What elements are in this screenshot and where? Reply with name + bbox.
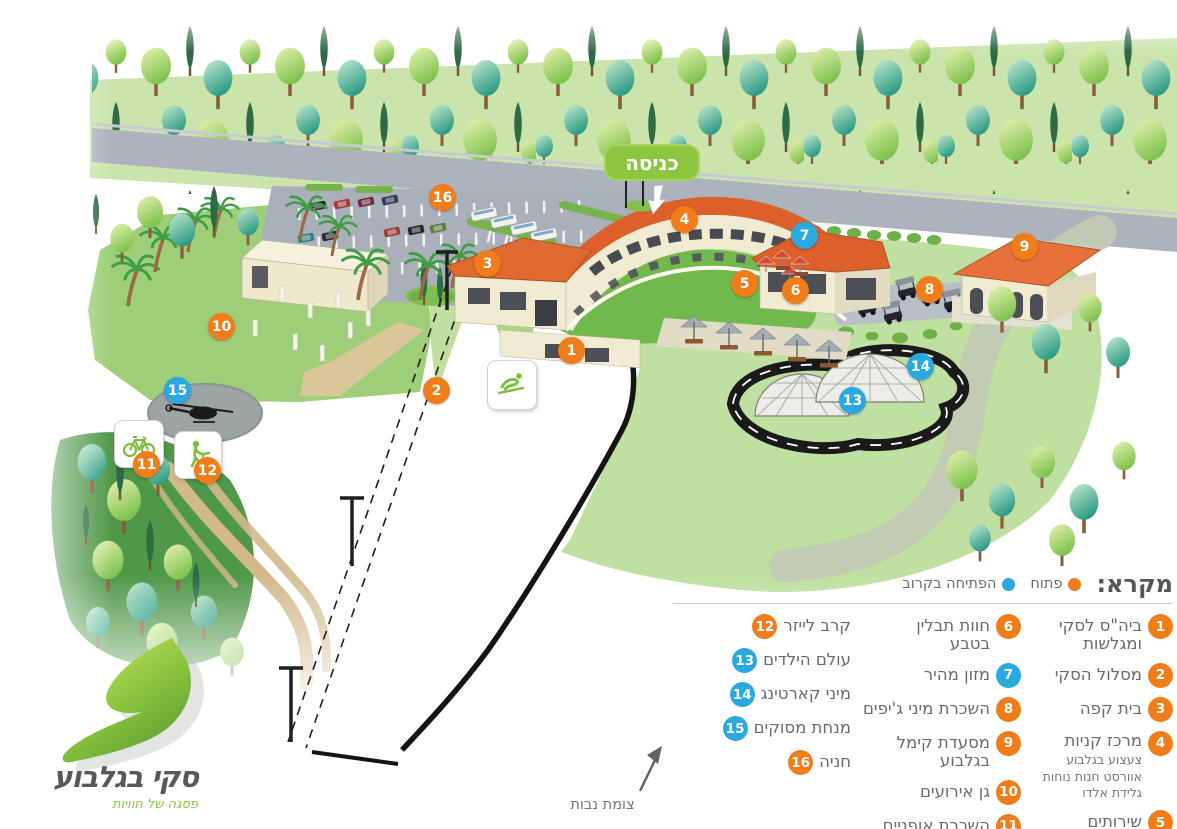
legend-badge-12: 12 (752, 614, 777, 639)
open-status-dot (1068, 578, 1081, 591)
legend-item-16: חניה 16 (673, 750, 851, 775)
legend-badge-3: 3 (1148, 697, 1173, 722)
legend-item-4: 4 מרכז קניות צעצוע בגלבוע אוורסט חנות נו… (1033, 731, 1173, 801)
legend-label-6: חוות תבלין בטבע (916, 614, 990, 654)
legend-label-15: מנחת מסוקים (754, 716, 851, 737)
legend-item-15: מנחת מסוקים 15 (673, 716, 851, 741)
legend-item-3: 3 בית קפה (1033, 697, 1173, 722)
legend-item-8: 8 השכרת מיני ג'יפים (863, 697, 1021, 722)
legend-label-3: בית קפה (1080, 697, 1142, 718)
map-marker-8: 8 (916, 276, 943, 303)
ski-gilboa-map-page: כניסה צומת נבות סקי בגלבוע פסגה של חוויו… (0, 0, 1177, 829)
legend-label-2: מסלול הסקי (1055, 663, 1142, 684)
legend-label-10: גן אירועים (920, 780, 990, 801)
legend-label-11: השכרת אופניים (883, 814, 990, 829)
legend-item-7: 7 מזון מהיר (863, 663, 1021, 688)
map-marker-2: 2 (423, 377, 450, 404)
map-marker-10: 10 (208, 313, 235, 340)
map-marker-9: 9 (1011, 233, 1038, 260)
legend-status-soon: הפתיחה בקרוב (902, 576, 1015, 592)
legend-item-11: 11 השכרת אופניים (863, 814, 1021, 829)
legend-item-10: 10 גן אירועים (863, 780, 1021, 805)
main-complex (447, 220, 890, 368)
skier-icon (487, 360, 537, 410)
legend-item-14: מיני קארטינג 14 (673, 682, 851, 707)
legend-badge-5: 5 (1148, 810, 1173, 829)
map-marker-4: 4 (671, 206, 698, 233)
legend-title: מקרא: (1096, 570, 1173, 598)
map-marker-5: 5 (731, 270, 758, 297)
legend-item-2: 2 מסלול הסקי (1033, 663, 1173, 688)
legend-label-12: קרב לייזר (783, 614, 851, 635)
legend-label-5: שירותים (1087, 810, 1142, 829)
map-marker-1: 1 (558, 337, 585, 364)
legend-item-1: 1 ביה"ס לסקי ומגלשות (1033, 614, 1173, 654)
legend: מקרא: פתוח הפתיחה בקרוב 1 ביה"ס לסקי ומג… (673, 570, 1173, 829)
legend-label-14: מיני קארטינג (761, 682, 851, 703)
legend-badge-7: 7 (996, 663, 1021, 688)
soon-status-dot (1002, 578, 1015, 591)
map-marker-15: 15 (164, 377, 191, 404)
map-marker-12: 12 (194, 457, 221, 484)
legend-badge-4: 4 (1148, 731, 1173, 756)
legend-badge-2: 2 (1148, 663, 1173, 688)
legend-label-1: ביה"ס לסקי ומגלשות (1059, 614, 1142, 654)
legend-badge-11: 11 (996, 814, 1021, 829)
legend-label-4: מרכז קניות (1064, 728, 1142, 750)
logo-title: סקי בגלבוע (26, 760, 198, 794)
legend-label-13: עולם הילדים (763, 648, 851, 669)
legend-badge-9: 9 (996, 731, 1021, 756)
soon-status-label: הפתיחה בקרוב (902, 576, 996, 592)
legend-label-8: השכרת מיני ג'יפים (863, 697, 990, 718)
legend-label-7: מזון מהיר (924, 663, 990, 684)
legend-item-13: עולם הילדים 13 (673, 648, 851, 673)
legend-status-open: פתוח (1030, 576, 1081, 592)
legend-column-1: 1 ביה"ס לסקי ומגלשות 2 מסלול הסקי 3 בית … (1033, 614, 1173, 829)
legend-item-6: 6 חוות תבלין בטבע (863, 614, 1021, 654)
legend-divider (673, 603, 1173, 604)
legend-column-2: 6 חוות תבלין בטבע 7 מזון מהיר 8 השכרת מי… (863, 614, 1021, 829)
map-marker-14: 14 (907, 353, 934, 380)
logo-tagline: פסגה של חוויות (26, 797, 198, 812)
legend-sublabel-4: צעצוע בגלבוע אוורסט חנות נוחות גלידת אלד… (1043, 752, 1142, 801)
legend-badge-10: 10 (996, 780, 1021, 805)
junction-label: צומת נבות (545, 797, 660, 813)
map-marker-11: 11 (133, 451, 160, 478)
legend-column-3: קרב לייזר 12 עולם הילדים 13 מיני קארטינג… (673, 614, 851, 829)
legend-label-9: מסעדת קימל בגלבוע (897, 731, 990, 771)
map-marker-3: 3 (474, 250, 501, 277)
entrance-sign: כניסה (604, 144, 700, 181)
legend-badge-16: 16 (788, 750, 813, 775)
open-status-label: פתוח (1030, 576, 1062, 592)
legend-item-5: 5 שירותים (1033, 810, 1173, 829)
map-marker-16: 16 (429, 184, 456, 211)
legend-badge-13: 13 (732, 648, 757, 673)
legend-label-16: חניה (819, 750, 851, 771)
legend-badge-6: 6 (996, 614, 1021, 639)
map-marker-6: 6 (782, 277, 809, 304)
map-marker-13: 13 (839, 387, 866, 414)
legend-badge-8: 8 (996, 697, 1021, 722)
legend-badge-1: 1 (1148, 614, 1173, 639)
legend-badge-14: 14 (730, 682, 755, 707)
legend-header: מקרא: פתוח הפתיחה בקרוב (673, 570, 1173, 598)
legend-item-12: קרב לייזר 12 (673, 614, 851, 639)
map-marker-7: 7 (791, 222, 818, 249)
legend-badge-15: 15 (723, 716, 748, 741)
legend-item-9: 9 מסעדת קימל בגלבוע (863, 731, 1021, 771)
